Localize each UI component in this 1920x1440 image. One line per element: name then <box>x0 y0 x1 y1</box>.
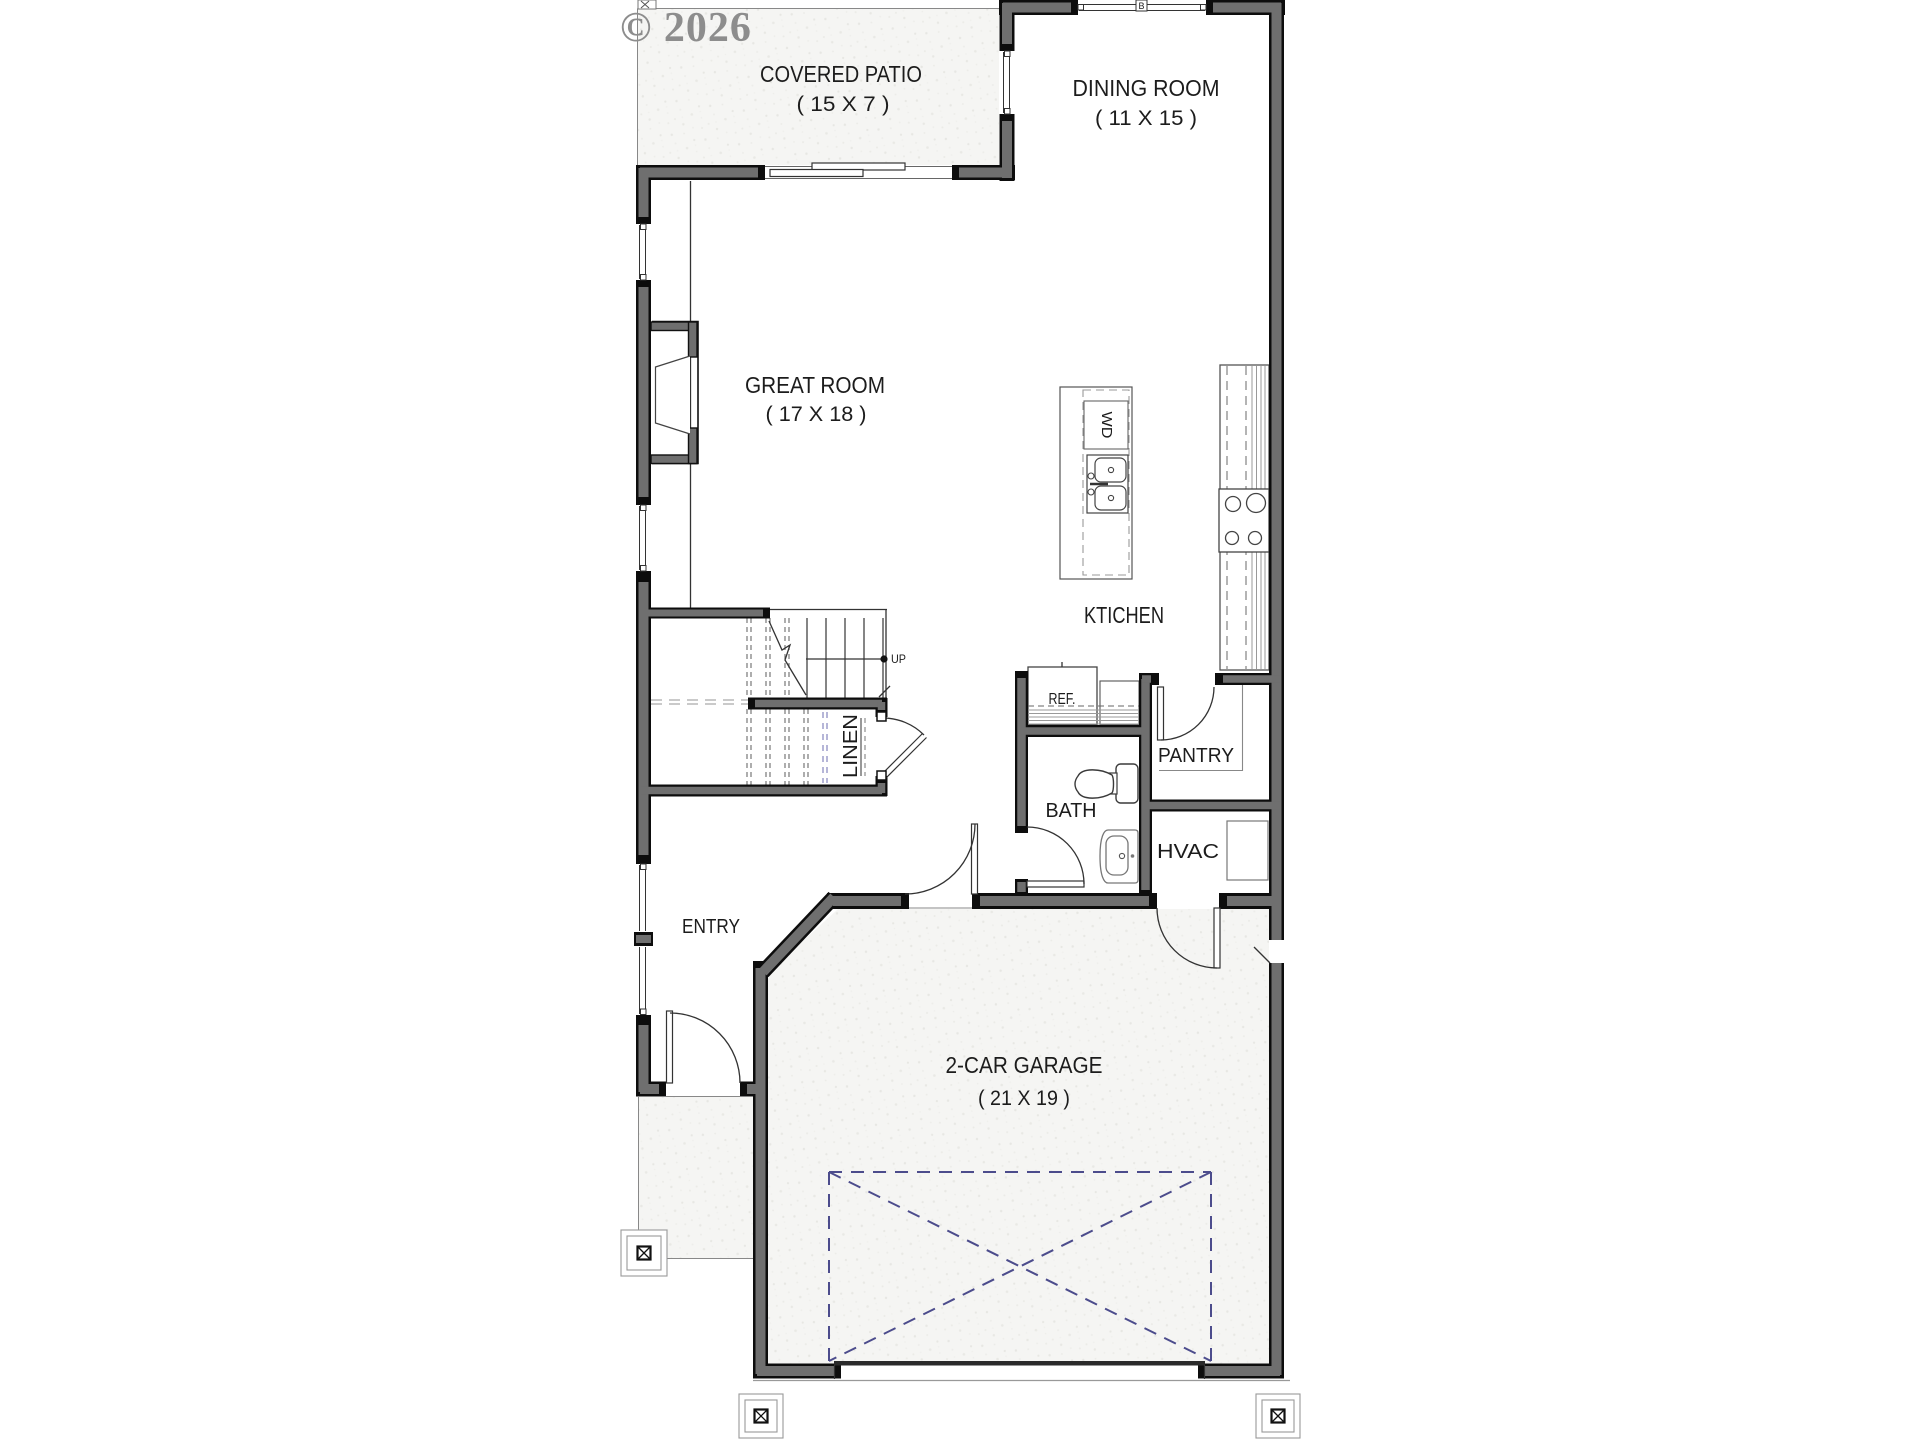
svg-text:ENTRY: ENTRY <box>682 915 740 938</box>
svg-text:( 11 X 15 ): ( 11 X 15 ) <box>1095 106 1197 130</box>
svg-text:PANTRY: PANTRY <box>1158 744 1234 767</box>
svg-text:HVAC: HVAC <box>1157 840 1219 863</box>
svg-text:COVERED PATIO: COVERED PATIO <box>760 61 922 87</box>
svg-text:LINEN: LINEN <box>840 714 862 778</box>
svg-text:BATH: BATH <box>1046 799 1097 822</box>
svg-text:B: B <box>1138 1 1144 11</box>
svg-text:KTICHEN: KTICHEN <box>1084 602 1164 628</box>
svg-text:2-CAR GARAGE: 2-CAR GARAGE <box>946 1052 1103 1078</box>
svg-text:( 21 X 19 ): ( 21 X 19 ) <box>978 1086 1070 1110</box>
svg-text:GREAT ROOM: GREAT ROOM <box>745 372 885 398</box>
svg-text:( 15 X 7 ): ( 15 X 7 ) <box>797 92 890 116</box>
svg-text:WD: WD <box>1098 412 1114 439</box>
svg-text:( 17 X 18 ): ( 17 X 18 ) <box>766 402 867 426</box>
svg-text:UP: UP <box>891 652 906 666</box>
svg-text:REF.: REF. <box>1049 691 1076 708</box>
svg-text:© 2026: © 2026 <box>620 5 752 51</box>
svg-text:DINING ROOM: DINING ROOM <box>1073 75 1220 101</box>
